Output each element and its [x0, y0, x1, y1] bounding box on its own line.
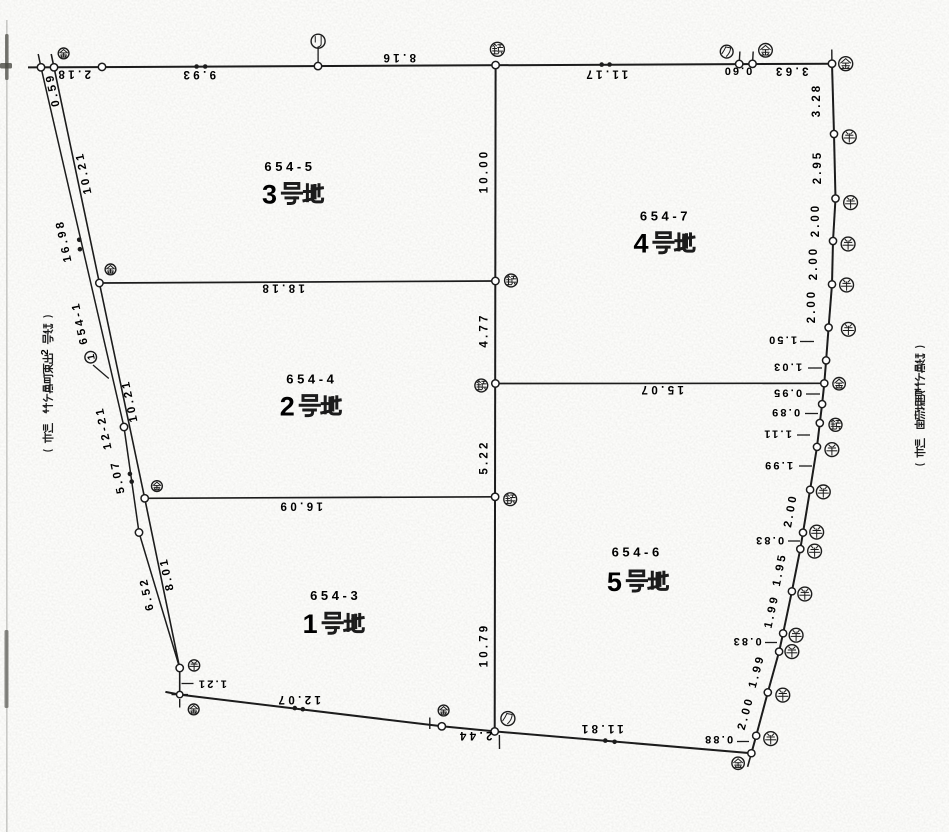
svg-text:0.89: 0.89	[770, 406, 800, 418]
svg-text:1.21: 1.21	[197, 678, 227, 690]
svg-text:2.00: 2.00	[806, 289, 818, 323]
svg-text:654-5: 654-5	[264, 159, 315, 174]
svg-text:0.60: 0.60	[723, 64, 752, 76]
svg-text:2.44: 2.44	[457, 729, 493, 741]
svg-text:10.79: 10.79	[479, 623, 491, 668]
svg-text:5: 5	[607, 567, 622, 597]
svg-text:1.99: 1.99	[763, 459, 793, 471]
svg-text:654-4: 654-4	[286, 371, 337, 386]
svg-text:3: 3	[262, 179, 277, 209]
svg-text:1.03: 1.03	[772, 361, 802, 373]
svg-text:654-6: 654-6	[612, 545, 663, 560]
svg-text:16.09: 16.09	[277, 499, 323, 511]
svg-text:4: 4	[633, 229, 648, 259]
svg-text:8.16: 8.16	[380, 51, 416, 63]
svg-text:1: 1	[303, 609, 318, 639]
svg-text:10.00: 10.00	[479, 149, 491, 194]
svg-text:5.22: 5.22	[479, 439, 491, 474]
svg-text:2.18: 2.18	[55, 67, 91, 79]
svg-text:0.83: 0.83	[731, 635, 761, 647]
svg-text:4.77: 4.77	[479, 312, 491, 347]
svg-text:2.00: 2.00	[810, 203, 822, 237]
svg-text:12.07: 12.07	[275, 693, 321, 705]
svg-text:1.50: 1.50	[767, 334, 797, 346]
svg-text:15.07: 15.07	[638, 383, 684, 395]
svg-text:2.95: 2.95	[812, 150, 824, 184]
svg-text:2: 2	[280, 391, 295, 421]
svg-text:1.11: 1.11	[762, 428, 792, 440]
svg-text:9.93: 9.93	[180, 68, 216, 80]
svg-text:0.95: 0.95	[772, 387, 802, 399]
svg-text:18.18: 18.18	[259, 281, 305, 293]
svg-text:3.28: 3.28	[811, 83, 823, 117]
svg-text:11.17: 11.17	[583, 68, 628, 80]
svg-text:3.63: 3.63	[773, 64, 809, 76]
svg-text:2: 2	[39, 349, 51, 355]
svg-text:654-3: 654-3	[310, 588, 361, 603]
svg-text:11.81: 11.81	[578, 722, 623, 734]
svg-text:654-7: 654-7	[640, 209, 691, 224]
svg-text:2.00: 2.00	[808, 246, 820, 280]
svg-text:0.83: 0.83	[754, 534, 784, 546]
svg-text:0.88: 0.88	[703, 733, 733, 745]
